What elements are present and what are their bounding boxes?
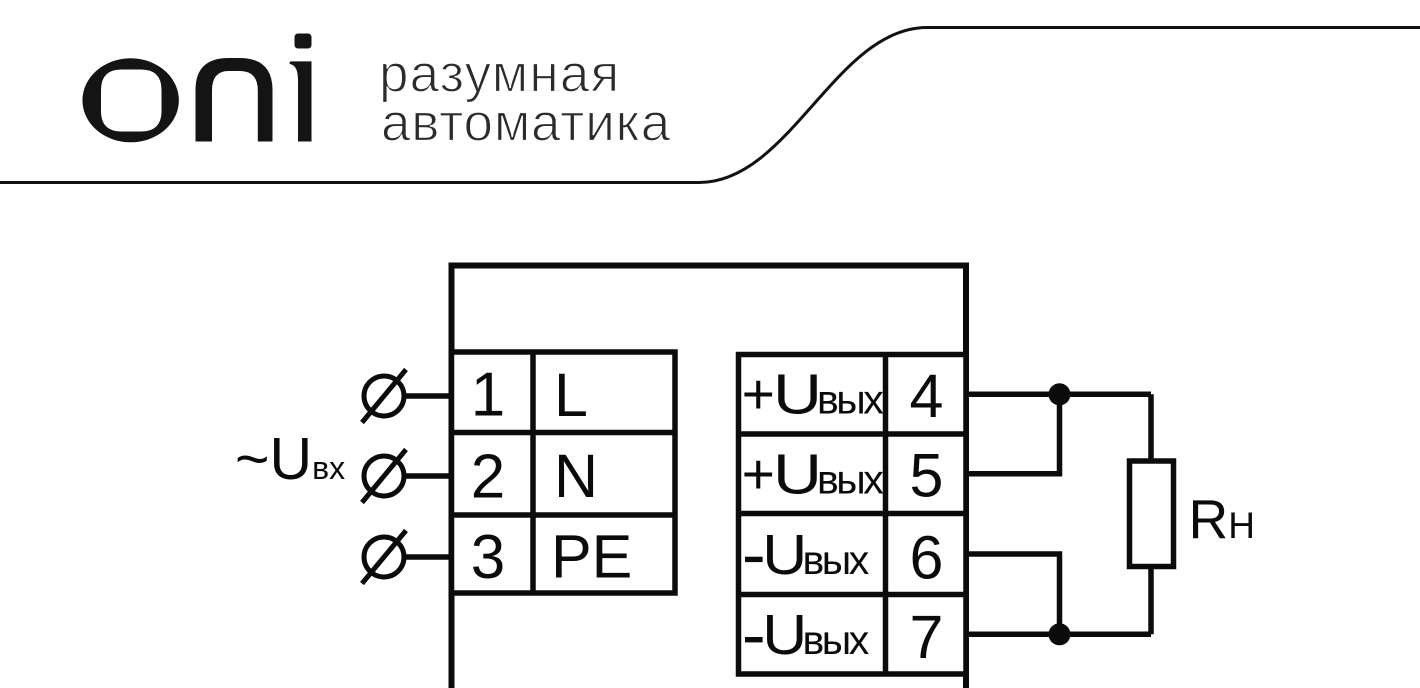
svg-text:N: N <box>554 442 598 510</box>
svg-text:1: 1 <box>471 361 505 430</box>
svg-text:L: L <box>554 361 588 429</box>
svg-text:4: 4 <box>910 362 944 430</box>
svg-text:7: 7 <box>910 603 944 671</box>
svg-text:автоматика: автоматика <box>381 94 671 153</box>
svg-text:PE: PE <box>551 523 632 591</box>
svg-text:5: 5 <box>910 442 944 510</box>
svg-text:2: 2 <box>471 443 505 512</box>
svg-text:6: 6 <box>910 524 944 592</box>
svg-text:3: 3 <box>471 523 505 592</box>
